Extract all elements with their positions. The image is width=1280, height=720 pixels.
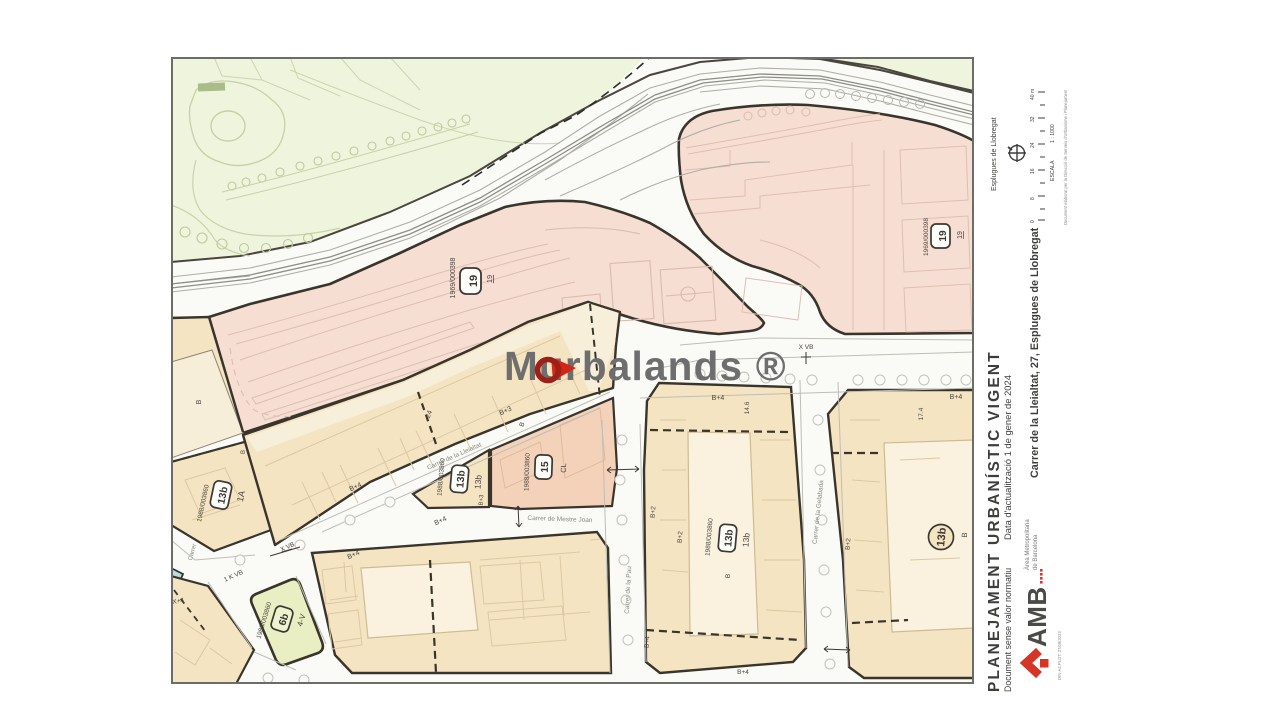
svg-text:13b: 13b bbox=[472, 474, 483, 489]
svg-text:13b: 13b bbox=[723, 529, 735, 547]
svg-text:B+2: B+2 bbox=[649, 506, 657, 519]
svg-text:Carrer de la Lleialtat, 27, Es: Carrer de la Lleialtat, 27, Esplugues de… bbox=[1029, 227, 1041, 478]
svg-text:19: 19 bbox=[468, 275, 480, 287]
svg-text:Data d'actualització 1 de gene: Data d'actualització 1 de gener de 2024 bbox=[1002, 375, 1013, 540]
svg-text:Document sense valor normatiu: Document sense valor normatiu bbox=[1003, 568, 1013, 692]
svg-text:14.6: 14.6 bbox=[744, 401, 751, 414]
svg-text:1 : 1000: 1 : 1000 bbox=[1050, 124, 1056, 143]
svg-text:B+4: B+4 bbox=[712, 395, 725, 402]
svg-text:B+2: B+2 bbox=[676, 531, 684, 544]
svg-text:15: 15 bbox=[540, 461, 551, 473]
svg-text:24: 24 bbox=[1030, 142, 1036, 148]
svg-text:16: 16 bbox=[1030, 168, 1036, 174]
svg-text:1988/003860: 1988/003860 bbox=[523, 453, 531, 492]
svg-text:8: 8 bbox=[1030, 197, 1036, 200]
svg-text:DIN-A4 PLOT: 27/09/2023: DIN-A4 PLOT: 27/09/2023 bbox=[1057, 631, 1062, 680]
svg-text:B+2: B+2 bbox=[844, 538, 852, 551]
svg-text:B+4: B+4 bbox=[643, 636, 651, 649]
svg-text:32: 32 bbox=[1030, 116, 1036, 122]
svg-text:B: B bbox=[725, 574, 732, 579]
svg-text:B+4: B+4 bbox=[737, 669, 749, 676]
svg-text:13b: 13b bbox=[935, 527, 949, 547]
svg-text:40 m: 40 m bbox=[1030, 89, 1036, 100]
svg-text:B: B bbox=[196, 399, 203, 404]
svg-text:19: 19 bbox=[938, 230, 949, 242]
svg-text:B: B bbox=[960, 532, 969, 538]
svg-text:13b: 13b bbox=[740, 532, 751, 547]
svg-text:Àrea Metropolitana: Àrea Metropolitana bbox=[1024, 519, 1031, 570]
svg-text:13b: 13b bbox=[455, 470, 467, 488]
svg-text:0: 0 bbox=[1030, 220, 1036, 223]
svg-text:de Barcelona: de Barcelona bbox=[1033, 534, 1039, 570]
svg-text:AMB: AMB bbox=[1022, 586, 1052, 647]
svg-text:B: B bbox=[241, 450, 247, 454]
svg-text:19: 19 bbox=[957, 231, 964, 239]
svg-text:Document elaborat per la Direc: Document elaborat per la Direcció de Ser… bbox=[1063, 89, 1068, 225]
svg-text:1969/000398: 1969/000398 bbox=[450, 257, 457, 298]
svg-text:B+4: B+4 bbox=[950, 394, 963, 401]
svg-text:CL: CL bbox=[559, 463, 568, 473]
svg-text:ESCALA: ESCALA bbox=[1050, 160, 1056, 181]
svg-text:19: 19 bbox=[485, 275, 494, 283]
svg-text:Esplugues de Llobregat: Esplugues de Llobregat bbox=[991, 117, 998, 191]
svg-text:17.4: 17.4 bbox=[918, 407, 925, 420]
svg-text:B+3: B+3 bbox=[479, 494, 486, 506]
svg-text:PLANEJAMENT URBANÍSTIC VIGENT: PLANEJAMENT URBANÍSTIC VIGENT bbox=[986, 350, 1003, 692]
svg-text:X VB: X VB bbox=[799, 344, 814, 351]
svg-text:1969/000398: 1969/000398 bbox=[923, 218, 930, 256]
